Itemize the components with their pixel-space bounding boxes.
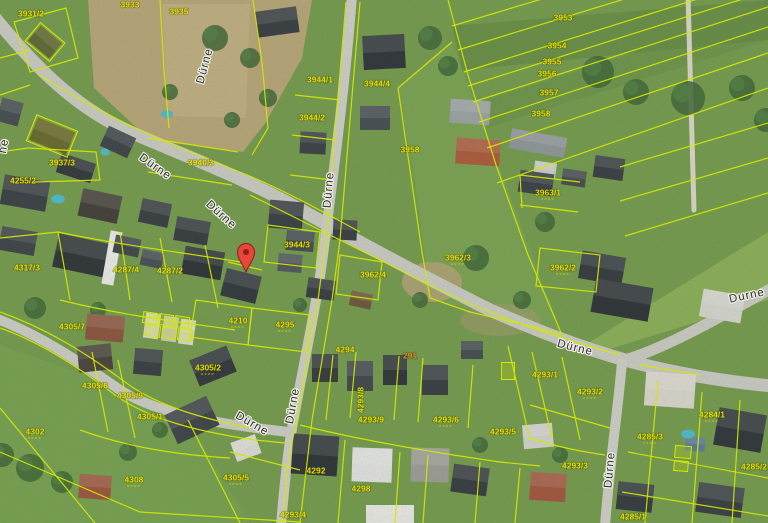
parcel-label: 3963/1: [535, 187, 561, 197]
aerial-map-canvas[interactable]: 3931/2393339353937/33940/33944/13944/439…: [0, 0, 768, 523]
parcel-label: 4305/9: [117, 390, 143, 400]
parcel-label: 4293/6: [433, 414, 459, 424]
map-viewport[interactable]: 3931/2393339353937/33940/33944/13944/439…: [0, 0, 768, 523]
parcel-label: 4294: [336, 344, 355, 354]
parcel-label: 4285/3: [637, 431, 663, 441]
parcel-label: 4305/7: [59, 321, 85, 331]
parcel-label: 4293/4: [280, 509, 306, 519]
parcel-label: 3937/3: [49, 157, 75, 167]
parcel-label: 3962/4: [360, 269, 386, 279]
parcel-label: 4285/1: [620, 511, 646, 521]
parcel-label: 3940/3: [188, 157, 214, 167]
parcel-label: 3958: [532, 108, 551, 118]
parcel-label: 4305/1: [137, 411, 163, 421]
parcel-label: 3933: [121, 0, 140, 9]
parcel-label: 4287/2: [157, 265, 183, 275]
parcel-label: 4293/5: [490, 426, 516, 436]
parcel-label: 291: [403, 350, 417, 360]
parcel-label: 3944/4: [364, 78, 390, 88]
parcel-label: 3944/1: [307, 74, 333, 84]
parcel-label: 4293/8: [355, 387, 365, 413]
parcel-label: 4308: [125, 474, 144, 484]
parcel-label: 3955: [543, 56, 562, 66]
cadastre-building-outline: [502, 363, 515, 380]
parcel-label: 4293/3: [562, 460, 588, 470]
parcel-label: 4305/5: [223, 472, 249, 482]
cadastre-building-outline: [145, 325, 160, 338]
parcel-label: 4305/2: [195, 362, 221, 372]
cadastre-building-outline: [674, 460, 689, 471]
parcel-label: 4255/2: [10, 175, 36, 185]
parcel-label: 3962/2: [550, 262, 576, 272]
parcel-label: 4293/9: [358, 414, 384, 424]
cadastre-building-outline: [675, 445, 692, 458]
parcel-label: 4287/4: [113, 264, 139, 274]
cadastre-building-outline: [177, 329, 192, 342]
parcel-label: 4285/2: [741, 461, 767, 471]
parcel-label: 3954: [548, 40, 567, 50]
parcel-label: 4210: [229, 315, 248, 325]
parcel-label: 4305/6: [82, 380, 108, 390]
parcel-label: 3957: [540, 87, 559, 97]
parcel-label: 3944/3: [284, 239, 310, 249]
parcel-label: 4302: [26, 426, 45, 436]
parcel-label: 3944/2: [299, 112, 325, 122]
parcel-label: 4292: [307, 465, 326, 475]
cadastre-building-outline: [142, 312, 157, 325]
parcel-label: 3962/3: [445, 252, 471, 262]
parcel-label: 3931/2: [18, 8, 44, 18]
parcel-label: 3935: [170, 6, 189, 16]
parcel-label: 4293/1: [532, 369, 558, 379]
parcel-label: 4317/3: [14, 262, 40, 272]
parcel-label: 4298: [352, 483, 371, 493]
parcel-label: 4295: [276, 319, 295, 329]
parcel-label: 3953: [554, 12, 573, 22]
parcel-label: 4284/1: [699, 409, 725, 419]
parcel-label: 3956: [538, 68, 557, 78]
parcel-label: 4293/2: [577, 386, 603, 396]
cadastre-building-outline: [158, 314, 173, 327]
cadastre-building-outline: [174, 316, 189, 329]
parcel-label: 3958: [401, 144, 420, 154]
cadastre-building-outline: [161, 327, 176, 340]
